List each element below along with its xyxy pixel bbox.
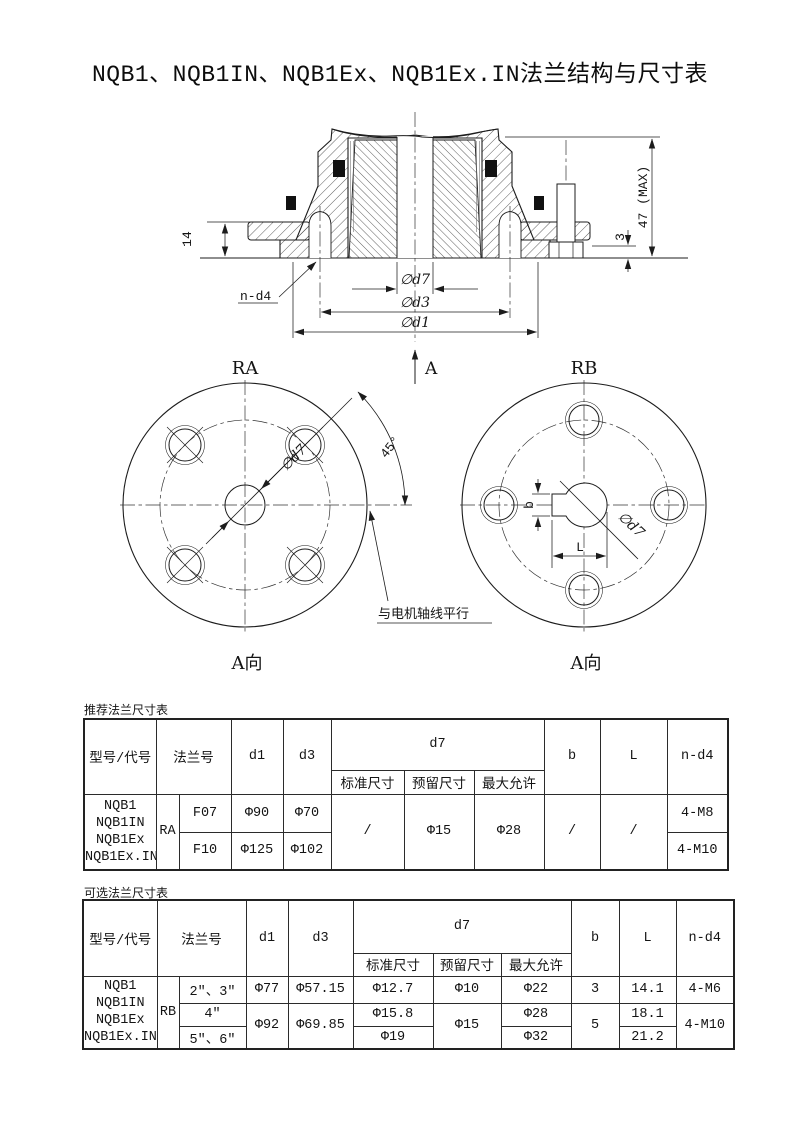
optional-flange-table: 型号/代号 法兰号 d1 d3 d7 b L n-d4 标准尺寸 预留尺寸 最大… xyxy=(82,899,735,1050)
t2-col-d7: d7 xyxy=(353,900,571,953)
t2-size-4: 4" xyxy=(179,1003,246,1026)
dim-14: 14 xyxy=(180,231,195,247)
t1-f10-d1: Φ125 xyxy=(231,832,283,870)
ra-direction-label: A向 xyxy=(231,653,263,674)
dim-phi-d1: ∅d1 xyxy=(400,315,430,331)
t2-col-d1: d1 xyxy=(246,900,288,976)
t1-L: / xyxy=(600,794,667,870)
t1-d7-std: / xyxy=(331,794,404,870)
t2-merged-d1: Φ92 xyxy=(246,1003,288,1049)
flange-drawing: 14 47 (MAX) 3 n-d4 ∅d7 ∅d3 ∅d1 A xyxy=(0,0,800,695)
t2-col-d3: d3 xyxy=(288,900,353,976)
t1-f07: F07 xyxy=(179,794,231,832)
ra-phid7-label: ∅d7 xyxy=(278,442,311,475)
dim-phi-d7: ∅d7 xyxy=(400,272,430,288)
t1-d7-max: Φ28 xyxy=(474,794,544,870)
rb-phid7-label: ∅d7 xyxy=(615,509,648,541)
stud-nut xyxy=(549,242,583,258)
stud-shaft xyxy=(557,184,575,242)
t2-col-flange: 法兰号 xyxy=(157,900,246,976)
t1-col-d7: d7 xyxy=(331,719,544,770)
t1-col-nd4: n-d4 xyxy=(667,719,728,794)
t2-merged-b: 5 xyxy=(571,1003,619,1049)
rb-dim-b: b xyxy=(522,501,537,509)
ra-note-text: 与电机轴线平行 xyxy=(378,607,469,622)
t2-r1-L: 14.1 xyxy=(619,976,676,1003)
rb-view-label: RB xyxy=(571,358,598,379)
t2-col-max: 最大允许 xyxy=(501,953,571,976)
t2-merged-d7res: Φ15 xyxy=(433,1003,501,1049)
t1-col-max: 最大允许 xyxy=(474,770,544,794)
t2-r2-d7std: Φ15.8 xyxy=(353,1003,433,1026)
t2-r2-d7max: Φ28 xyxy=(501,1003,571,1026)
t1-f10: F10 xyxy=(179,832,231,870)
cross-section-view xyxy=(200,112,688,342)
t1-f10-nd4: 4-M10 xyxy=(667,832,728,870)
t2-r1-d7max: Φ22 xyxy=(501,976,571,1003)
ra-view-label: RA xyxy=(232,358,260,379)
table1-caption: 推荐法兰尺寸表 xyxy=(84,701,168,718)
rb-dim-l: L xyxy=(576,540,584,555)
t2-r1-nd4: 4-M6 xyxy=(676,976,734,1003)
seal-ring xyxy=(534,196,544,210)
dim-3: 3 xyxy=(613,233,628,241)
t2-r3-d7std: Φ19 xyxy=(353,1026,433,1049)
plate-left xyxy=(248,222,310,240)
plate-right xyxy=(520,222,590,240)
t1-model-cell: NQB1 NQB1IN NQB1Ex NQB1Ex.IN xyxy=(84,794,156,870)
t2-r1-d7std: Φ12.7 xyxy=(353,976,433,1003)
t2-r3-L: 21.2 xyxy=(619,1026,676,1049)
t2-size-5-6: 5"、6" xyxy=(179,1026,246,1049)
t2-r3-d7max: Φ32 xyxy=(501,1026,571,1049)
label-n-d4: n-d4 xyxy=(240,289,271,304)
t1-f07-d3: Φ70 xyxy=(283,794,331,832)
t1-col-model: 型号/代号 xyxy=(84,719,156,794)
seal-ring xyxy=(286,196,296,210)
t2-r1-d1: Φ77 xyxy=(246,976,288,1003)
dim-47-max: 47 (MAX) xyxy=(636,166,651,228)
label-view-a-arrow: A xyxy=(424,359,438,379)
t2-col-res: 预留尺寸 xyxy=(433,953,501,976)
t1-col-L: L xyxy=(600,719,667,794)
t1-col-std: 标准尺寸 xyxy=(331,770,404,794)
t1-f10-d3: Φ102 xyxy=(283,832,331,870)
recommended-flange-table: 型号/代号 法兰号 d1 d3 d7 b L n-d4 标准尺寸 预留尺寸 最大… xyxy=(83,718,729,871)
t1-col-d3: d3 xyxy=(283,719,331,794)
t1-d7-res: Φ15 xyxy=(404,794,474,870)
t2-col-model: 型号/代号 xyxy=(83,900,157,976)
t2-r1-d3: Φ57.15 xyxy=(288,976,353,1003)
page: NQB1、NQB1IN、NQB1Ex、NQB1Ex.IN法兰结构与尺寸表 xyxy=(0,0,800,1132)
rb-bore-keyway xyxy=(552,483,607,527)
ra-angle-45: 45° xyxy=(377,433,403,461)
rb-direction-label: A向 xyxy=(570,653,602,674)
t2-col-nd4: n-d4 xyxy=(676,900,734,976)
t2-col-L: L xyxy=(619,900,676,976)
t2-col-std: 标准尺寸 xyxy=(353,953,433,976)
t1-code-ra: RA xyxy=(156,794,179,870)
t2-model-cell: NQB1 NQB1IN NQB1Ex NQB1Ex.IN xyxy=(83,976,157,1049)
t2-code-rb: RB xyxy=(157,976,179,1049)
sleeve-left xyxy=(349,140,397,258)
ra-view xyxy=(120,380,492,634)
t1-b: / xyxy=(544,794,600,870)
t2-r2-L: 18.1 xyxy=(619,1003,676,1026)
t1-f07-d1: Φ90 xyxy=(231,794,283,832)
t2-r1-b: 3 xyxy=(571,976,619,1003)
seal-ring xyxy=(333,160,345,177)
t2-merged-nd4: 4-M10 xyxy=(676,1003,734,1049)
t1-col-d1: d1 xyxy=(231,719,283,794)
t1-col-res: 预留尺寸 xyxy=(404,770,474,794)
t2-merged-d3: Φ69.85 xyxy=(288,1003,353,1049)
t2-r1-d7res: Φ10 xyxy=(433,976,501,1003)
t1-col-flange: 法兰号 xyxy=(156,719,231,794)
ra-note-leader xyxy=(370,511,388,601)
seal-ring xyxy=(485,160,497,177)
dim-phi-d3: ∅d3 xyxy=(400,295,430,311)
sleeve-right xyxy=(433,140,481,258)
t2-col-b: b xyxy=(571,900,619,976)
t2-size-2-3: 2"、3" xyxy=(179,976,246,1003)
t1-f07-nd4: 4-M8 xyxy=(667,794,728,832)
t1-col-b: b xyxy=(544,719,600,794)
rb-view xyxy=(460,380,708,634)
